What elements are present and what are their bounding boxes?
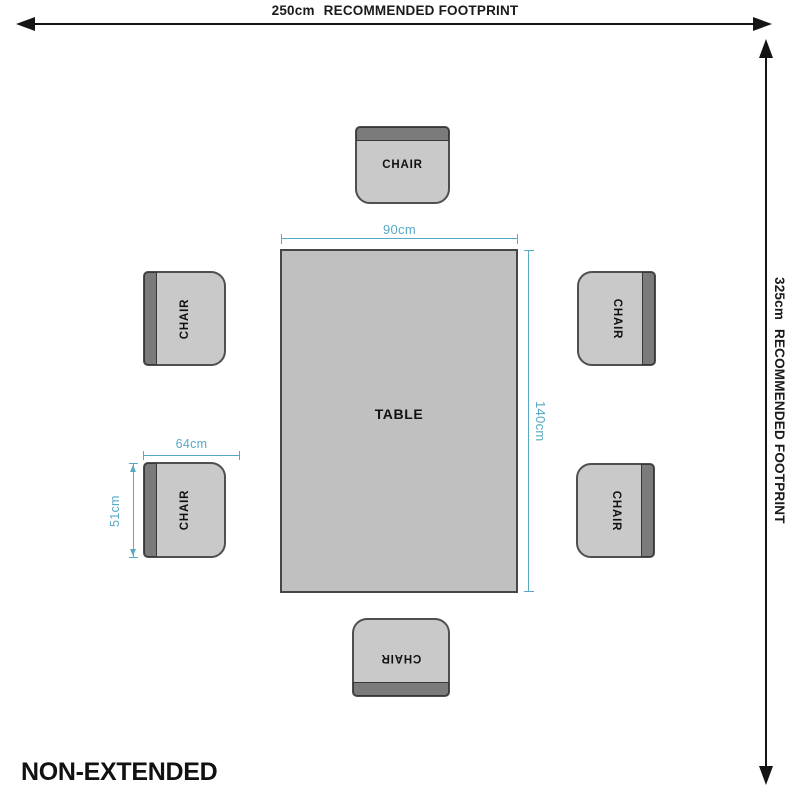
chair-left-lower: CHAIR [143, 462, 226, 558]
chair-backrest [144, 463, 157, 557]
dimension-arrow-up-icon [130, 465, 136, 472]
dimension-tick [517, 234, 518, 244]
width-arrow-left-icon [16, 17, 35, 31]
height-arrow-down-icon [759, 766, 773, 785]
height-arrow-up-icon [759, 39, 773, 58]
width-arrow-right-icon [753, 17, 772, 31]
table: TABLE [280, 249, 518, 593]
dimension-tick [239, 451, 240, 460]
table-length-line [528, 250, 529, 592]
height-footprint-text: RECOMMENDED FOOTPRINT [772, 329, 787, 524]
chair-backrest [642, 272, 655, 365]
chair-label: CHAIR [381, 652, 421, 664]
chair-right-lower: CHAIR [576, 463, 655, 558]
dimension-diagram: 250cmRECOMMENDED FOOTPRINT 325cmRECOMMEN… [0, 0, 800, 800]
width-footprint-label: 250cmRECOMMENDED FOOTPRINT [0, 3, 790, 18]
width-footprint-value: 250cm [272, 3, 315, 18]
chair-bottom: CHAIR [352, 618, 450, 697]
chair-label: CHAIR [382, 159, 422, 171]
chair-top: CHAIR [355, 126, 450, 204]
chair-backrest [356, 127, 449, 141]
chair-backrest [641, 464, 654, 557]
chair-depth-label: 51cm [108, 464, 122, 558]
dimension-tick [143, 451, 144, 460]
height-footprint-value: 325cm [772, 277, 787, 320]
width-footprint-text: RECOMMENDED FOOTPRINT [324, 3, 519, 18]
width-arrow-line [22, 23, 768, 25]
chair-backrest [353, 682, 449, 696]
chair-label: CHAIR [611, 298, 623, 338]
table-length-label: 140cm [533, 250, 548, 592]
chair-left-upper: CHAIR [143, 271, 226, 366]
dimension-tick [281, 234, 282, 244]
chair-width-label: 64cm [143, 437, 240, 451]
table-width-label: 90cm [281, 222, 518, 237]
table-label: TABLE [375, 406, 424, 422]
dimension-arrow-down-icon [130, 549, 136, 556]
chair-right-upper: CHAIR [577, 271, 656, 366]
table-width-line [281, 238, 518, 239]
chair-label: CHAIR [179, 490, 191, 530]
dimension-tick [129, 557, 138, 558]
height-footprint-label: 325cmRECOMMENDED FOOTPRINT [772, 0, 787, 800]
chair-label: CHAIR [179, 298, 191, 338]
chair-label: CHAIR [610, 490, 622, 530]
dimension-tick [129, 463, 138, 464]
chair-backrest [144, 272, 157, 365]
chair-depth-line [133, 464, 134, 558]
chair-width-line [143, 455, 240, 456]
height-arrow-line [765, 44, 767, 782]
variant-title: NON-EXTENDED [21, 758, 217, 787]
